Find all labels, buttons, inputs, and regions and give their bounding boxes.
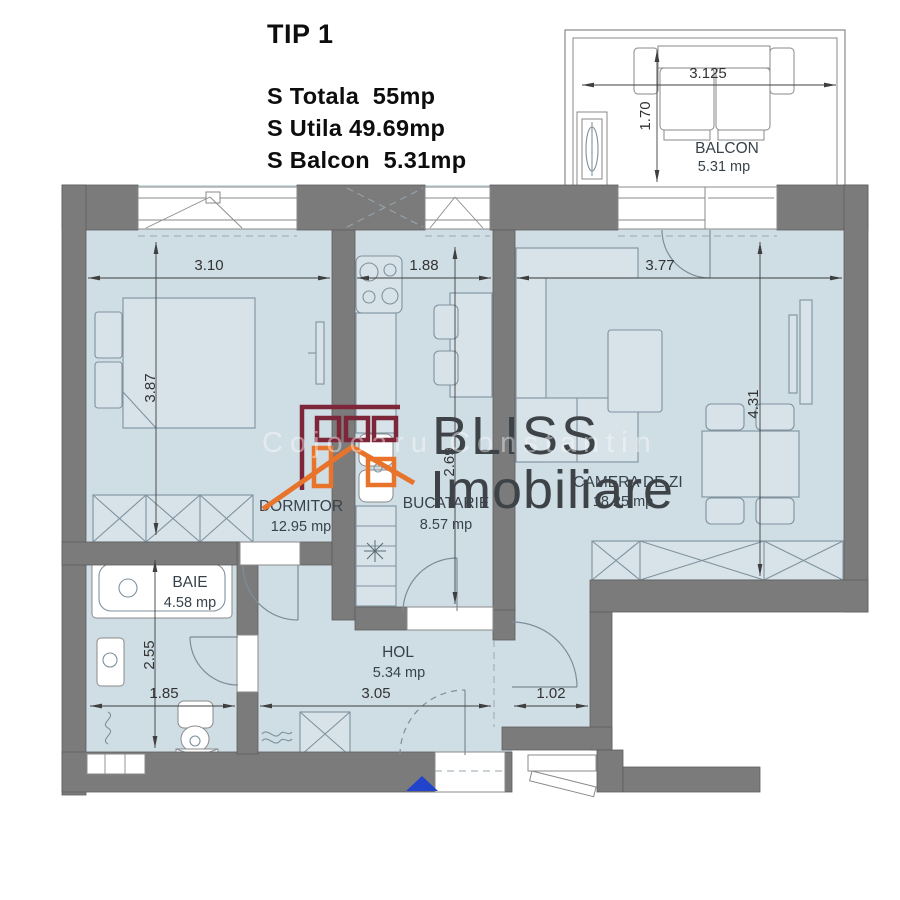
tv-console xyxy=(800,300,812,404)
tv-icon xyxy=(789,315,797,393)
sofa-icon xyxy=(516,248,638,278)
wardrobe-icon xyxy=(592,541,843,580)
dim-bedroom-width: 3.10 xyxy=(194,257,223,274)
dim-living-height: 4.31 xyxy=(745,389,762,418)
lamp-symbol-icon xyxy=(364,540,386,562)
room-label-baie: BAIE xyxy=(172,574,207,591)
stove-icon xyxy=(356,256,402,313)
area-label-balcon: 5.31 mp xyxy=(698,159,750,175)
living-window xyxy=(618,187,777,236)
spec-balcon: S Balcon 5.31mp xyxy=(267,147,466,173)
tv-icon xyxy=(316,322,324,384)
bath-sink-icon xyxy=(97,638,124,686)
wardrobe-icon xyxy=(93,495,253,542)
ac-unit-icon xyxy=(577,112,607,186)
kitchen-window xyxy=(425,187,490,236)
logo-text-bottom: Imobiliare xyxy=(430,460,674,520)
bedroom-window xyxy=(138,187,297,236)
nightstand-icon xyxy=(95,362,122,408)
page-title: TIP 1 xyxy=(267,19,334,49)
area-label-hol: 5.34 mp xyxy=(373,665,425,681)
dim-balcony-width: 3.125 xyxy=(689,65,727,82)
dim-balcony-height: 1.70 xyxy=(637,101,654,130)
dim-bedroom-height: 3.87 xyxy=(142,373,159,402)
kitchen-cabinet xyxy=(356,506,396,606)
chair-icon xyxy=(434,305,458,339)
chair-icon xyxy=(756,498,794,524)
nightstand-icon xyxy=(95,312,122,358)
kitchen-counter xyxy=(356,313,396,433)
chair-icon xyxy=(706,498,744,524)
watermark-text: Cojocaru Constantin xyxy=(262,427,658,459)
spec-total: S Totala 55mp xyxy=(267,83,435,109)
bed-icon xyxy=(123,298,255,428)
chair-icon xyxy=(706,404,744,430)
hall-cabinet-icon xyxy=(300,712,350,756)
floor-plan: 3.125 1.70 BALCON 5.31 mp xyxy=(0,0,900,900)
spec-utila: S Utila 49.69mp xyxy=(267,115,445,141)
dim-living-width: 3.77 xyxy=(645,257,674,274)
area-label-baie: 4.58 mp xyxy=(164,595,216,611)
neighbor-door-icon xyxy=(528,755,596,797)
dim-bath-height: 2.55 xyxy=(141,640,158,669)
room-label-balcon: BALCON xyxy=(695,140,759,157)
balcony: 3.125 1.70 BALCON 5.31 mp xyxy=(565,30,845,187)
dim-entry-width: 1.02 xyxy=(536,685,565,702)
dining-table-icon xyxy=(702,431,799,497)
dim-hol-width: 3.05 xyxy=(361,685,390,702)
room-label-hol: HOL xyxy=(382,644,414,661)
coffee-table-icon xyxy=(608,330,662,412)
chair-icon xyxy=(434,351,458,385)
toilet-icon xyxy=(178,701,213,752)
area-label-dormitor: 12.95 mp xyxy=(271,519,331,535)
dim-bath-width: 1.85 xyxy=(149,685,178,702)
header: TIP 1 S Totala 55mp S Utila 49.69mp S Ba… xyxy=(267,19,466,173)
dim-kitchen-width: 1.88 xyxy=(409,257,438,274)
bathroom-window xyxy=(87,754,145,774)
